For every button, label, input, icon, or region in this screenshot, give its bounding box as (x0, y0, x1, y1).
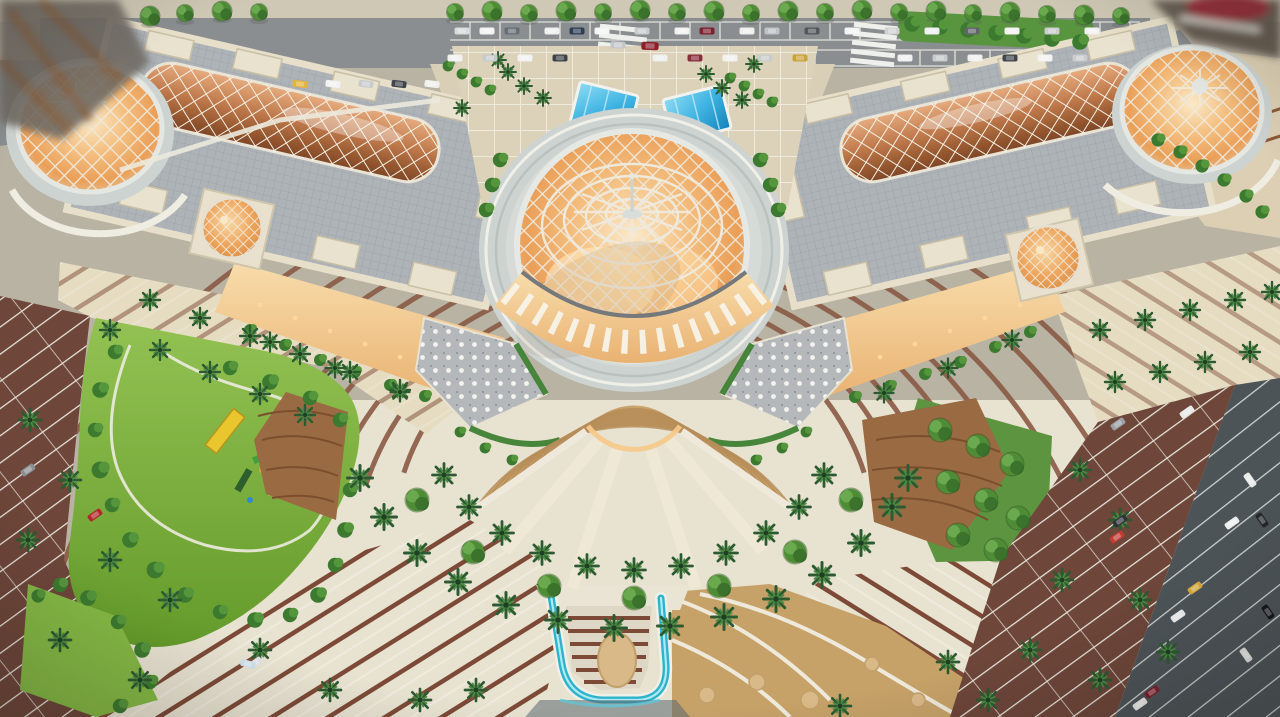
photo-vignette (0, 0, 1280, 717)
aerial-model-scene (0, 0, 1280, 717)
model-photo-stage (0, 0, 1280, 717)
